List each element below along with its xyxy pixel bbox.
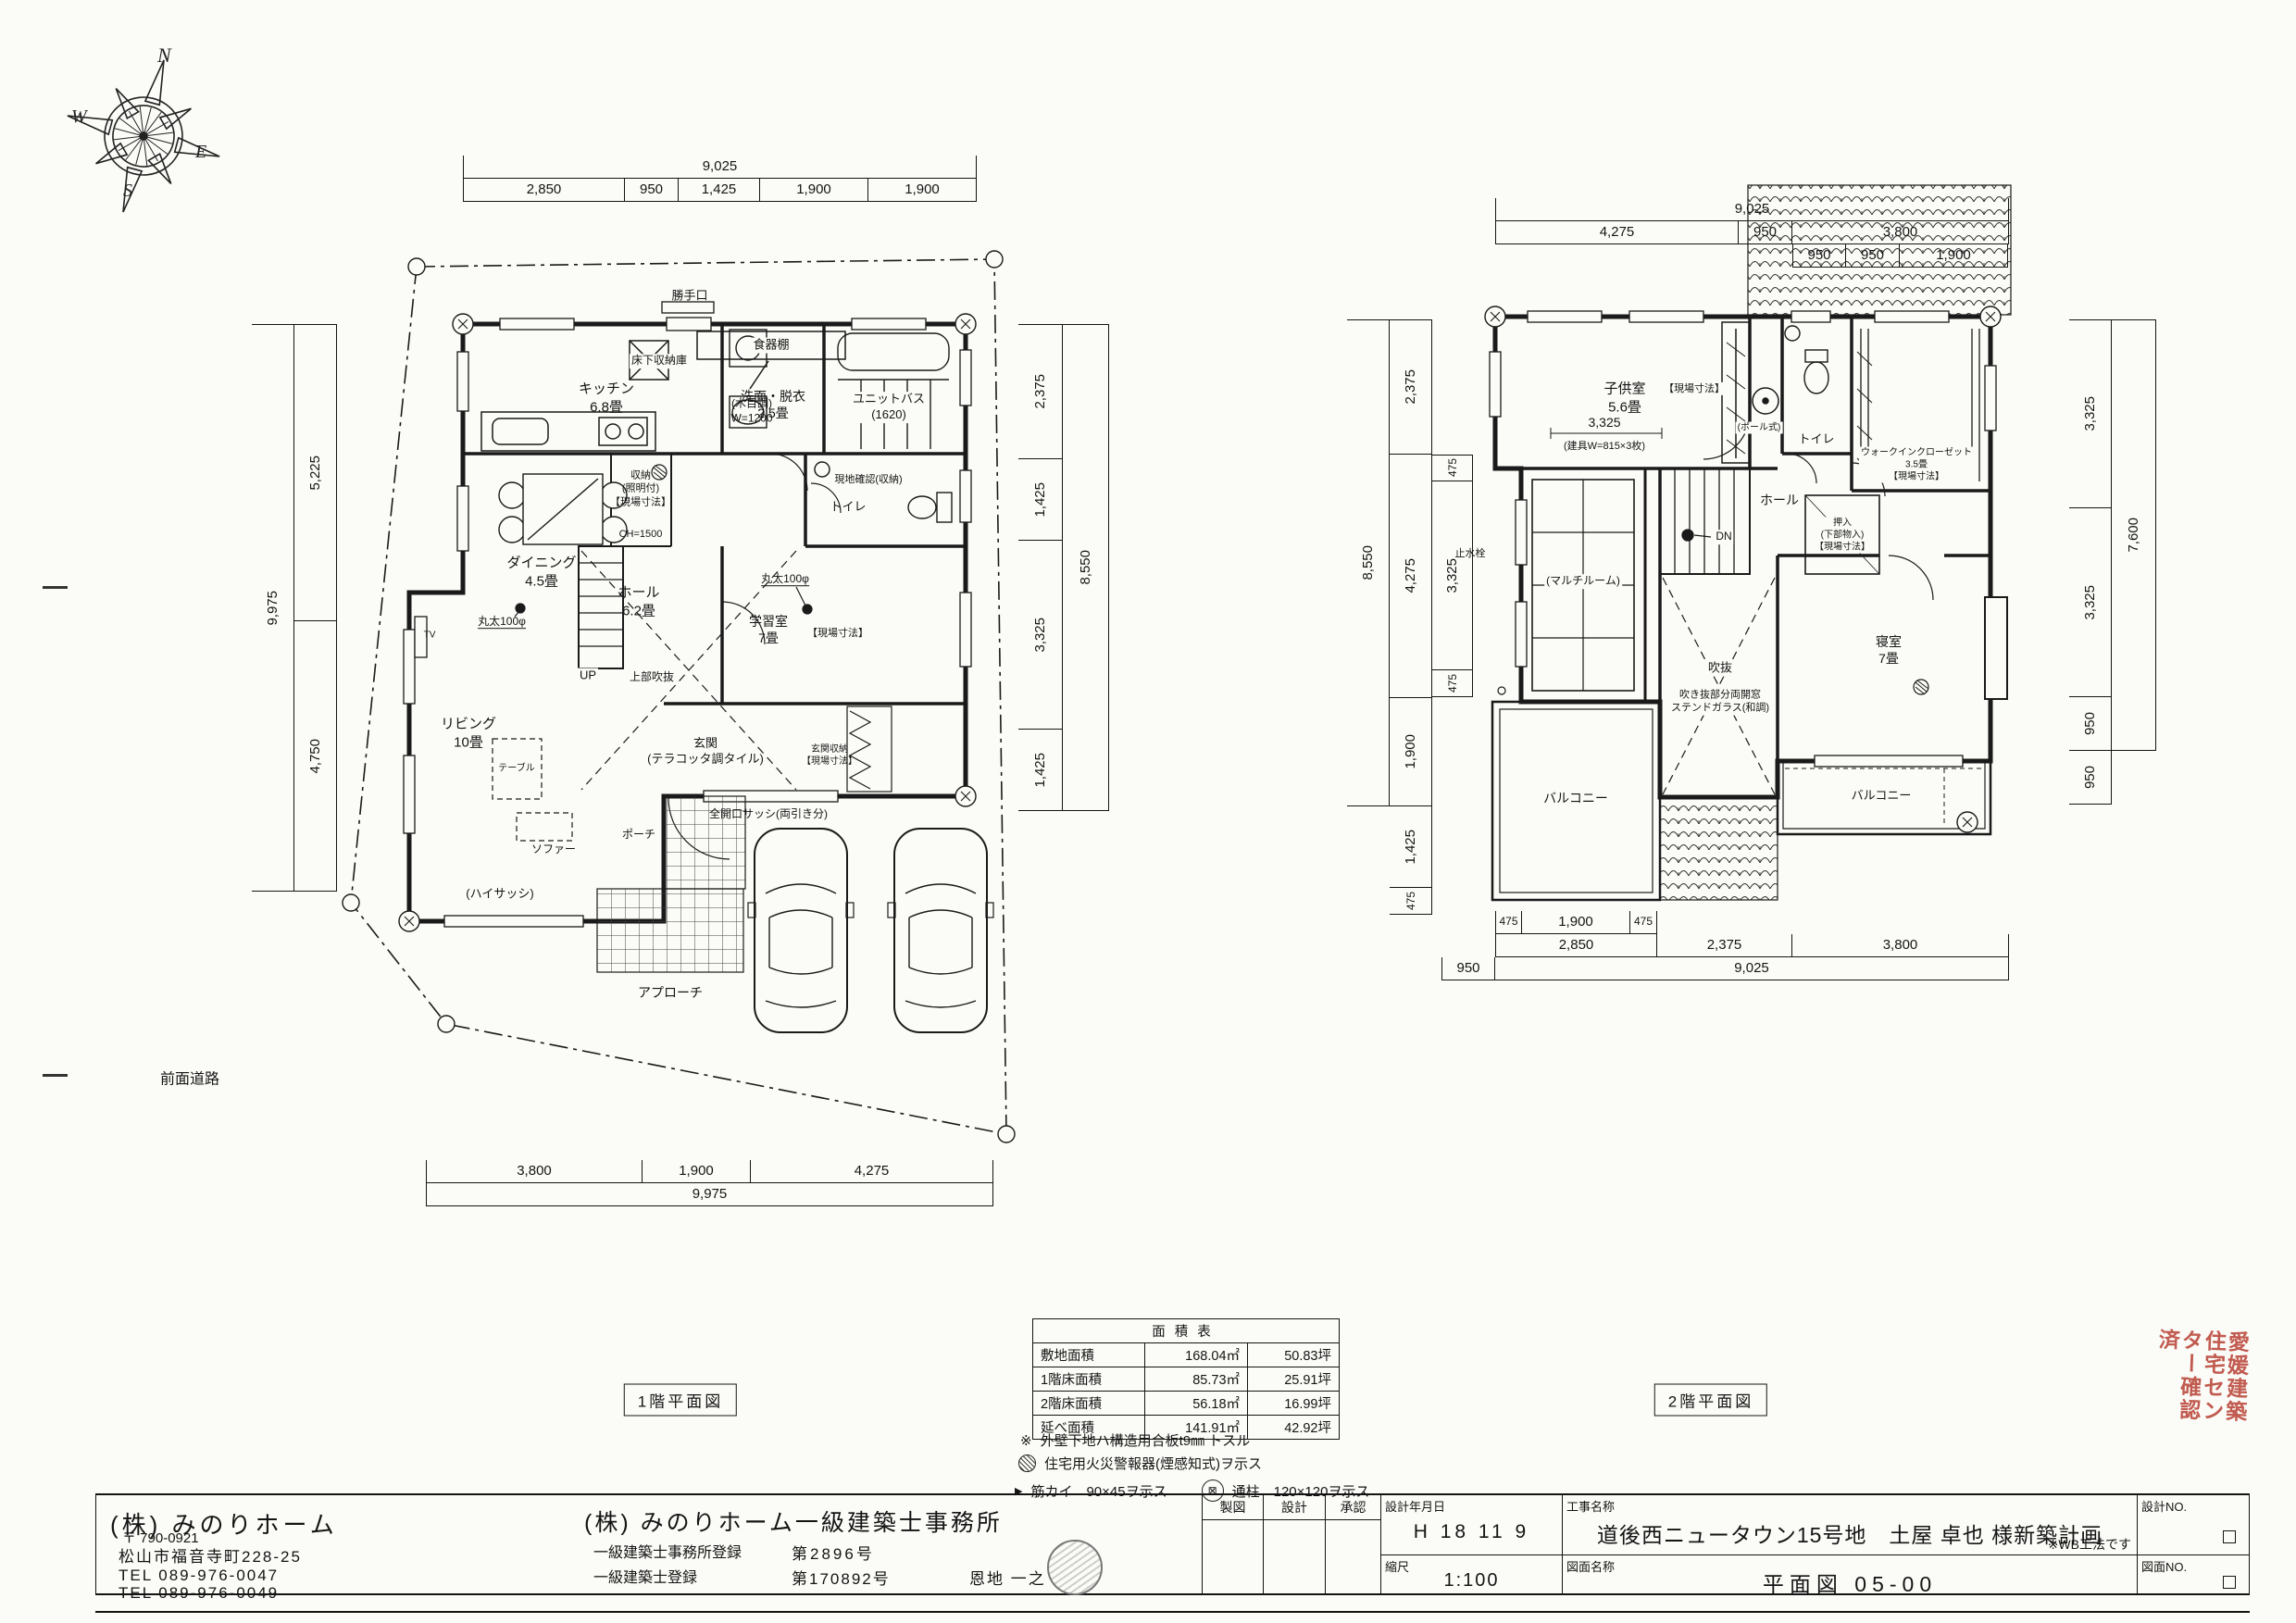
page-bottom-rule (95, 1611, 2250, 1613)
label-up: UP (578, 668, 598, 684)
area-tsubo: 50.83坪 (1248, 1343, 1340, 1367)
company-postal: 〒 790-0921 (122, 1529, 199, 1548)
dim: 8,550 (1078, 550, 1093, 585)
label-storage: 収納 (照明付) 【現場寸法】 (610, 469, 671, 509)
dim: 4,750 (307, 739, 323, 774)
floor1-plan (333, 241, 1055, 1167)
dim: 9,975 (426, 1183, 993, 1206)
label-void: 吹抜 (1706, 661, 1734, 677)
dim: 4,275 (1495, 221, 1739, 244)
dim: 1,425 (679, 179, 760, 202)
dim: 950 (1846, 244, 1900, 268)
f2-dims-bottom: 2,850 2,375 3,800 (1495, 934, 2009, 957)
page-tick (43, 1074, 68, 1077)
company-tel2: TEL 089-976-0049 (119, 1583, 279, 1604)
f1-dims-bottom: 3,800 1,900 4,275 9,975 (426, 1160, 993, 1206)
label-kids-dim: 3,325 (1588, 414, 1620, 431)
scale-cell: 縮尺 1:100 (1380, 1555, 1562, 1595)
office-reg2-value: 第170892号 (792, 1569, 891, 1590)
label-storage-ch: CH=1500 (619, 528, 663, 541)
col-header: 製図 (1203, 1495, 1263, 1520)
project-cell: 工事名称 道後西ニュータウン15号地 土屋 卓也 様新築計画 ※WB工法です (1562, 1495, 2137, 1555)
dim: 9,025 (463, 156, 977, 179)
f2-dims-right-total: 7,600 (2112, 319, 2156, 751)
label-tv: TV (424, 630, 436, 642)
area-table: 面積表 敷地面積 168.04㎡ 50.83坪 1階床面積 85.73㎡ 25.… (1032, 1318, 1340, 1440)
office-reg2-label: 一級建築士登録 (593, 1569, 697, 1589)
dim: 950 (1792, 244, 1846, 268)
label-toilet-1f: トイレ (830, 500, 866, 516)
page-tick (43, 586, 68, 589)
dim: 950 (2082, 712, 2098, 735)
compass-w: W (71, 106, 89, 127)
label-table: テーブル (498, 763, 534, 775)
col-approval: 承認 (1325, 1495, 1380, 1595)
certification-stamp: 愛媛建築 住宅セン ター確認 済 (2151, 1328, 2249, 1479)
dim: 475 (1404, 892, 1417, 910)
label-sofa: ソファー (531, 843, 576, 857)
architect-name: 恩地 一之 (969, 1569, 1046, 1590)
label-wic: ウォークインクローゼット 3.5畳 【現場寸法】 (1859, 447, 1974, 483)
compass-rose: N W E S (51, 20, 250, 229)
dim: 4,275 (1403, 558, 1418, 593)
design-no-box (2223, 1530, 2236, 1543)
label-hall-1f: ホール 6.2畳 (618, 584, 659, 620)
label-washroom: 洗面・脱衣 2.5畳 (741, 388, 805, 421)
area-m2: 168.04㎡ (1145, 1343, 1248, 1367)
note-sheathing: ※ 外壁下地ハ構造用合板t9㎜ トスル (1020, 1430, 1250, 1450)
label-dn: DN (1714, 530, 1733, 544)
cell-label: 図面NO. (2141, 1557, 2187, 1575)
dim: 8,550 (1360, 545, 1376, 581)
dim: 950 (1441, 957, 1495, 980)
compass-s: S (123, 181, 132, 201)
note-mark: ※ (1020, 1432, 1032, 1449)
label-study: 学習室 7畳 (749, 613, 788, 646)
sheet-no-box (2223, 1576, 2236, 1589)
office-name: (株) みのりホーム一級建築士事務所 (584, 1508, 1003, 1539)
label-oshiire: 押入 (下部物入) 【現場寸法】 (1813, 518, 1872, 554)
sheet-name-cell: 図面名称 平面図 05-00 (1562, 1555, 2137, 1595)
label-approach: アプローチ (638, 984, 703, 1001)
label-kids-room: 子供室 5.6畳 (1603, 381, 1645, 417)
note-text: 外壁下地ハ構造用合板t9㎜ トスル (1041, 1430, 1251, 1450)
label-hall-2f: ホール (1760, 492, 1799, 508)
label-high-sash: (ハイサッシ) (466, 887, 533, 903)
label-field-dim-study: 【現場寸法】 (807, 627, 868, 640)
dim: 1,425 (1032, 753, 1048, 788)
dim: 1,900 (868, 179, 977, 202)
floor2-caption: 2階平面図 (1654, 1384, 1767, 1417)
compass-n: N (156, 44, 172, 67)
dim: 3,800 (426, 1160, 643, 1183)
area-label: 1階床面積 (1033, 1367, 1145, 1392)
dim: 3,800 (1792, 934, 2009, 957)
label-site-check: 現地確認(収納) (834, 473, 902, 486)
dim: 950 (625, 179, 679, 202)
label-floor-storage: 床下収納庫 (630, 354, 689, 368)
label-multi-room: (マルチルーム) (1544, 574, 1622, 589)
cell-label: 工事名称 (1566, 1497, 1615, 1515)
col-header: 設計 (1264, 1495, 1325, 1520)
f2-dims-right: 3,325 3,325 950 950 (2069, 319, 2112, 805)
area-label: 敷地面積 (1033, 1343, 1145, 1367)
table-row: 敷地面積 168.04㎡ 50.83坪 (1033, 1343, 1340, 1367)
dim: 9,975 (265, 591, 281, 626)
dim: 3,325 (1032, 618, 1048, 653)
f1-dims-left-total: 9,975 (252, 324, 294, 892)
cell-label: 設計NO. (2141, 1497, 2187, 1515)
note-text: 住宅用火災警報器(煙感知式)ヲ示ス (1044, 1454, 1262, 1473)
fire-alarm-icon (1018, 1454, 1036, 1472)
dim: 3,800 (1792, 221, 2009, 244)
company-address: 松山市福音寺町228-25 (119, 1547, 302, 1567)
compass-e: E (194, 142, 206, 162)
dim: 475 (1495, 911, 1522, 934)
floor1-caption: 1階平面図 (624, 1384, 737, 1417)
col-header: 承認 (1326, 1495, 1380, 1520)
note-fire-alarm: 住宅用火災警報器(煙感知式)ヲ示ス (1018, 1454, 1262, 1473)
dim: 9,025 (1495, 198, 2009, 221)
dim: 3,325 (2082, 585, 2098, 620)
dim: 2,850 (1495, 934, 1657, 957)
office-reg1-label: 一級建築士事務所登録 (593, 1544, 742, 1564)
dim: 2,850 (463, 179, 625, 202)
area-m2: 56.18㎡ (1145, 1392, 1248, 1416)
architect-seal (1047, 1540, 1103, 1595)
dim: 1,900 (1522, 911, 1630, 934)
f1-dims-right-total: 8,550 (1063, 324, 1109, 811)
f2-dims-top: 9,025 4,275 950 3,800 950 950 1,900 (1495, 198, 2009, 268)
area-m2: 85.73㎡ (1145, 1367, 1248, 1392)
label-full-sash: 全開口サッシ(両引き分) (709, 807, 828, 822)
dim: 2,375 (1403, 369, 1418, 405)
f2-dims-left-inner: 475 3,325 475 (1432, 455, 1473, 697)
sheet-name: 平面図 05-00 (1563, 1567, 2137, 1598)
dim: 1,900 (1900, 244, 2008, 268)
wb-note: ※WB工法です (2048, 1535, 2131, 1554)
label-entrance-storage: 玄関収納 【現場寸法】 (802, 743, 857, 768)
label-log2: 丸太100φ (761, 572, 809, 587)
label-field-dim-2f: 【現場寸法】 (1662, 382, 1727, 395)
label-void-above: 上部吹抜 (630, 670, 674, 685)
area-tsubo: 16.99坪 (1248, 1392, 1340, 1416)
label-kids-note: (建具W=815×3枚) (1564, 440, 1645, 453)
col-drafting: 製図 (1202, 1495, 1263, 1595)
table-row: 2階床面積 56.18㎡ 16.99坪 (1033, 1392, 1340, 1416)
dim: 1,425 (1032, 482, 1048, 518)
f1-dims-top: 9,025 2,850 950 1,425 1,900 1,900 (463, 156, 977, 202)
label-balcony-right: バルコニー (1850, 789, 1914, 805)
dim: 7,600 (2126, 518, 2141, 553)
scale-value: 1:100 (1381, 1570, 1562, 1592)
area-tsubo: 42.92坪 (1248, 1416, 1340, 1440)
dim: 9,025 (1495, 957, 2009, 980)
label-toilet-2f: トイレ (1798, 432, 1834, 448)
col-design: 設計 (1263, 1495, 1325, 1595)
dim: 3,325 (1444, 558, 1460, 593)
date-value: H 18 11 9 (1381, 1521, 1562, 1543)
dim: 1,425 (1403, 830, 1418, 865)
sheet-no-cell: 図面NO. (2137, 1555, 2249, 1595)
area-table-title: 面積表 (1033, 1319, 1340, 1343)
dim: 1,900 (760, 179, 868, 202)
label-unit-bath: ユニットバス (1620) (851, 392, 927, 423)
dim: 1,900 (1403, 734, 1418, 769)
dim: 5,225 (307, 456, 323, 491)
dim: 950 (1739, 221, 1792, 244)
area-tsubo: 25.91坪 (1248, 1367, 1340, 1392)
f1-dims-right: 2,375 1,425 3,325 1,425 (1018, 324, 1063, 811)
f2-dims-bottom-total: 950 9,025 (1441, 957, 2009, 980)
dim: 950 (2082, 766, 2098, 789)
label-void-note: 吹き抜部分両開窓 ステンドガラス(和調) (1669, 689, 1771, 716)
dim: 475 (1446, 458, 1459, 477)
floor2-plan (1444, 176, 2111, 935)
f2-dims-left-total: 8,550 (1347, 319, 1390, 806)
title-block: (株) みのりホーム 〒 790-0921 松山市福音寺町228-25 TEL … (95, 1493, 2250, 1595)
label-balcony-left: バルコニー (1543, 790, 1608, 806)
drawing-sheet: N W E S (0, 0, 2296, 1623)
dim: 4,275 (751, 1160, 993, 1183)
date-cell: 設計年月日 H 18 11 9 (1380, 1495, 1562, 1555)
label-kitchen: キッチン 6.8畳 (579, 381, 634, 417)
label-dining: ダイニング 4.5畳 (506, 555, 576, 591)
label-bedroom: 寝室 7畳 (1876, 633, 1902, 667)
dim: 475 (1446, 674, 1459, 693)
label-katteguchi: 勝手口 (671, 289, 707, 305)
label-porch: ポーチ (620, 828, 657, 843)
dim: 475 (1630, 911, 1657, 934)
cell-label: 設計年月日 (1385, 1497, 1445, 1515)
dim: 2,375 (1032, 374, 1048, 409)
f2-dims-left: 2,375 4,275 1,900 1,425 475 (1390, 319, 1432, 915)
design-no-cell: 設計NO. (2137, 1495, 2249, 1555)
dim: 1,900 (643, 1160, 751, 1183)
office-reg1-value: 第2896号 (792, 1544, 875, 1565)
label-living: リビング 10畳 (441, 716, 496, 752)
label-dish-shelf: 食器棚 (751, 338, 791, 354)
label-front-road: 前面道路 (160, 1071, 219, 1091)
f2-dims-bottom-sub: 475 1,900 475 (1495, 911, 1657, 934)
table-row: 1階床面積 85.73㎡ 25.91坪 (1033, 1367, 1340, 1392)
dim: 3,325 (2082, 396, 2098, 431)
dim: 2,375 (1657, 934, 1792, 957)
label-log1: 丸太100φ (478, 615, 526, 630)
area-label: 2階床面積 (1033, 1392, 1145, 1416)
label-entrance: 玄関 (テラコッタ調タイル) (647, 736, 764, 768)
f1-dims-left: 5,225 4,750 (294, 324, 337, 892)
label-pole: (ポール式) (1736, 422, 1783, 434)
